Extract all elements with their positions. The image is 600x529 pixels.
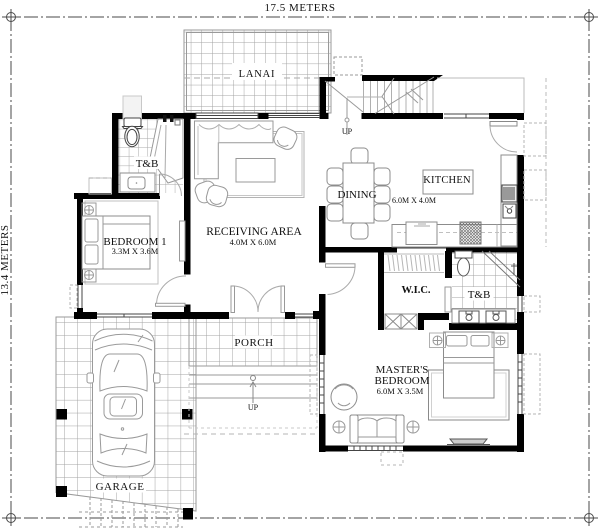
svg-text:6.0M X 3.5M: 6.0M X 3.5M: [377, 386, 424, 396]
svg-text:T&B: T&B: [136, 158, 159, 170]
svg-text:LANAI: LANAI: [239, 69, 276, 80]
svg-text:17.5 METERS: 17.5 METERS: [265, 2, 336, 14]
svg-text:W.I.C.: W.I.C.: [401, 285, 430, 296]
svg-text:UP: UP: [342, 127, 353, 136]
svg-text:13.4 METERS: 13.4 METERS: [0, 225, 11, 296]
svg-text:3.3M X 3.6M: 3.3M X 3.6M: [112, 246, 159, 256]
svg-text:DINING: DINING: [337, 189, 376, 201]
svg-text:UP: UP: [248, 403, 259, 412]
svg-text:PORCH: PORCH: [234, 337, 273, 349]
svg-text:6.0M X 4.0M: 6.0M X 4.0M: [392, 196, 436, 205]
svg-text:T&B: T&B: [468, 289, 491, 301]
svg-text:4.0M X 6.0M: 4.0M X 6.0M: [230, 237, 277, 247]
svg-text:KITCHEN: KITCHEN: [423, 175, 471, 186]
svg-text:GARAGE: GARAGE: [96, 481, 145, 493]
